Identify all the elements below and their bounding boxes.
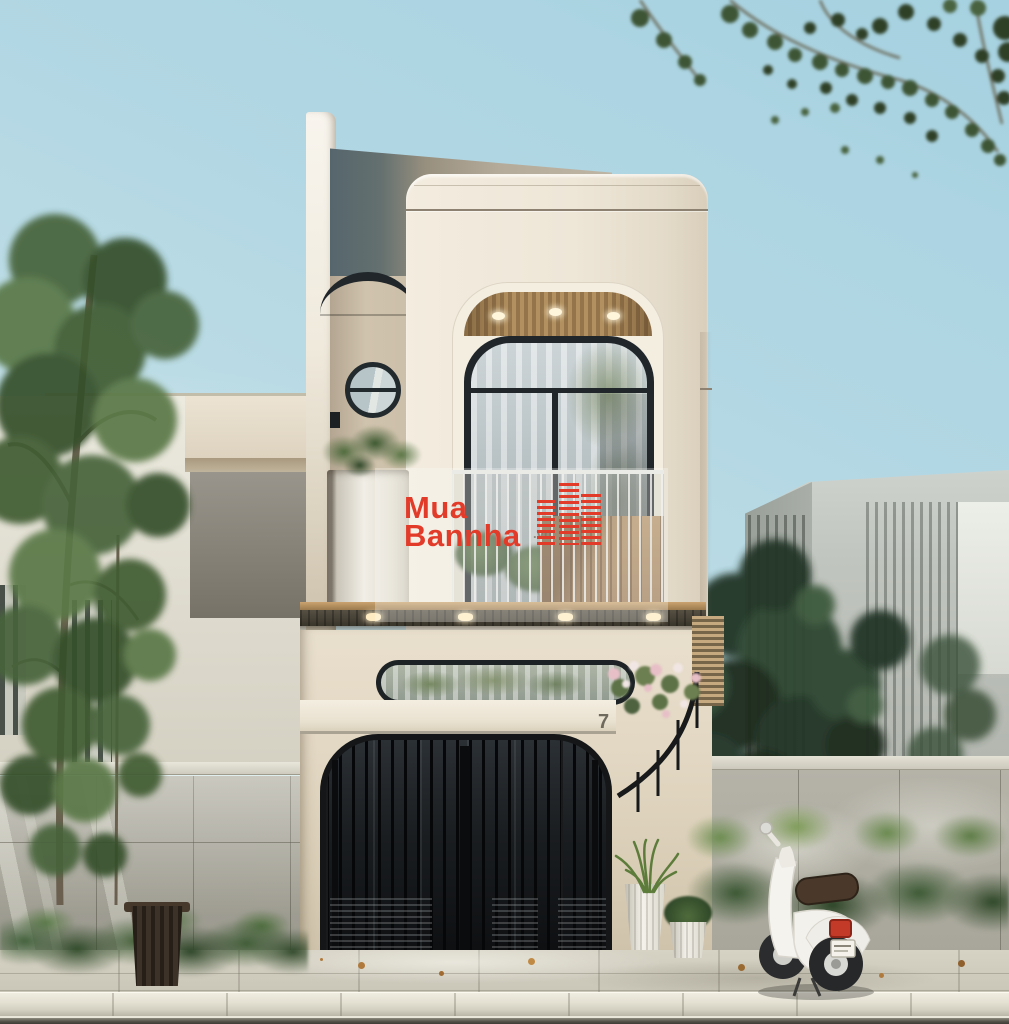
transom-window-glass xyxy=(381,665,630,700)
gate-vent-panel xyxy=(330,898,432,948)
trash-bin xyxy=(128,906,186,986)
small-planter-pot xyxy=(668,922,708,958)
right-wall-cap xyxy=(698,756,1009,770)
watermark-logo-building-icon xyxy=(581,494,601,545)
facade-score-line xyxy=(414,185,700,186)
upper-door-transom-bar xyxy=(464,388,654,393)
porthole-window xyxy=(345,362,401,418)
street-asphalt xyxy=(0,1016,1009,1024)
soffit-downlight xyxy=(492,312,505,320)
soffit-downlight xyxy=(549,308,562,316)
left-tree xyxy=(0,205,230,965)
white-scooter xyxy=(738,818,893,1008)
gate-center-stile xyxy=(460,746,470,956)
entry-lintel-beam xyxy=(300,700,616,734)
watermark-logo-building-icon xyxy=(559,483,579,545)
facade-groove-line xyxy=(406,209,708,211)
facade-right-groove xyxy=(700,388,712,390)
gate-vent-panel xyxy=(492,898,538,948)
street-scene: 7 xyxy=(0,0,1009,1024)
porthole-mullion xyxy=(350,388,396,392)
grass-plant xyxy=(612,838,684,894)
facade-right-return xyxy=(700,332,712,632)
fallen-leaves xyxy=(320,958,323,961)
soffit-downlight xyxy=(607,312,620,320)
flowering-vine-railing xyxy=(600,658,712,818)
watermark-logo-building-icon xyxy=(537,500,555,545)
gate-vent-panel xyxy=(558,898,606,948)
watermark-brand-line2: Bannha xyxy=(404,520,521,551)
